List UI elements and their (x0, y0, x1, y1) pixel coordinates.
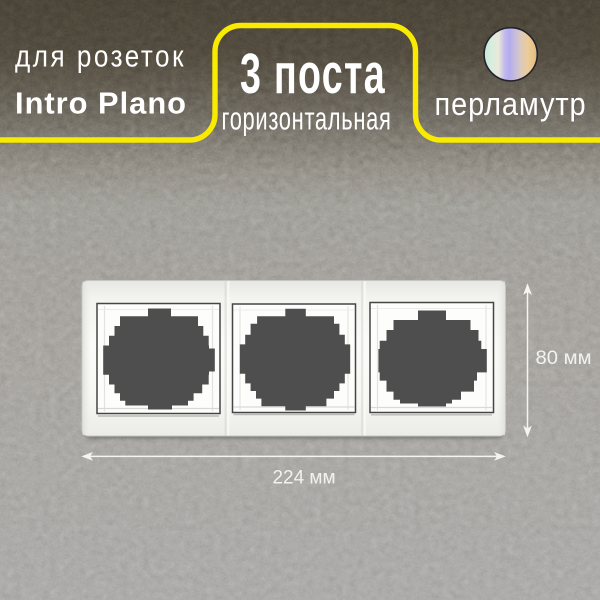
svg-text:горизонтальная: горизонтальная (222, 101, 392, 137)
svg-text:перламутр: перламутр (435, 86, 587, 122)
svg-text:3 поста: 3 поста (240, 42, 386, 106)
svg-text:80 мм: 80 мм (536, 347, 592, 369)
svg-text:для розеток: для розеток (15, 39, 186, 74)
svg-text:Intro Plano: Intro Plano (15, 86, 187, 121)
svg-text:224 мм: 224 мм (273, 467, 336, 489)
